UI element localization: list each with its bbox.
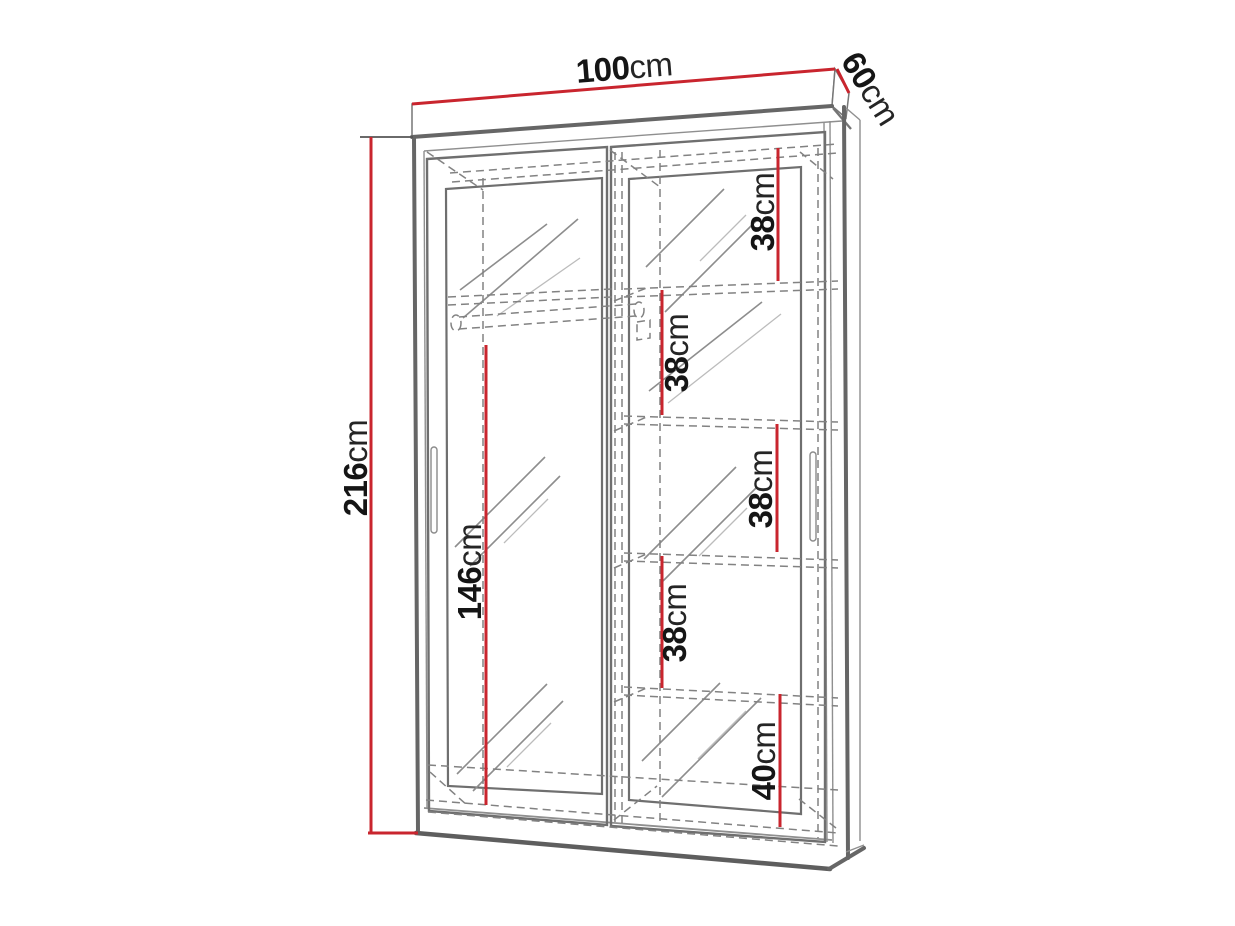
dimension-label-shelf-gap-2: 38cm xyxy=(658,314,695,393)
wardrobe-dimension-diagram: 100cm 60cm 216cm 146cm 38cm 38cm 38cm 38… xyxy=(0,0,1235,926)
dimension-label-bottom-section: 40cm xyxy=(745,722,782,801)
dimension-label-shelf-gap-3: 38cm xyxy=(742,450,779,529)
mirror-hatching xyxy=(455,189,781,797)
right-door xyxy=(611,132,825,842)
shelf-3 xyxy=(624,553,838,568)
right-door-handle xyxy=(810,452,816,541)
dimension-label-width: 100cm xyxy=(574,45,673,90)
left-mirror-frame xyxy=(446,178,602,794)
dimension-label-hanging-space: 146cm xyxy=(451,524,488,621)
shelf-2 xyxy=(624,416,838,430)
dimension-label-shelf-gap-1: 38cm xyxy=(744,173,781,252)
shelf-4 xyxy=(624,687,838,706)
dimension-label-shelf-gap-4: 38cm xyxy=(656,584,693,663)
dimension-label-height: 216cm xyxy=(337,420,374,517)
shelf-1 xyxy=(624,281,838,297)
hanging-rail xyxy=(451,302,650,340)
left-door-handle xyxy=(431,447,437,533)
